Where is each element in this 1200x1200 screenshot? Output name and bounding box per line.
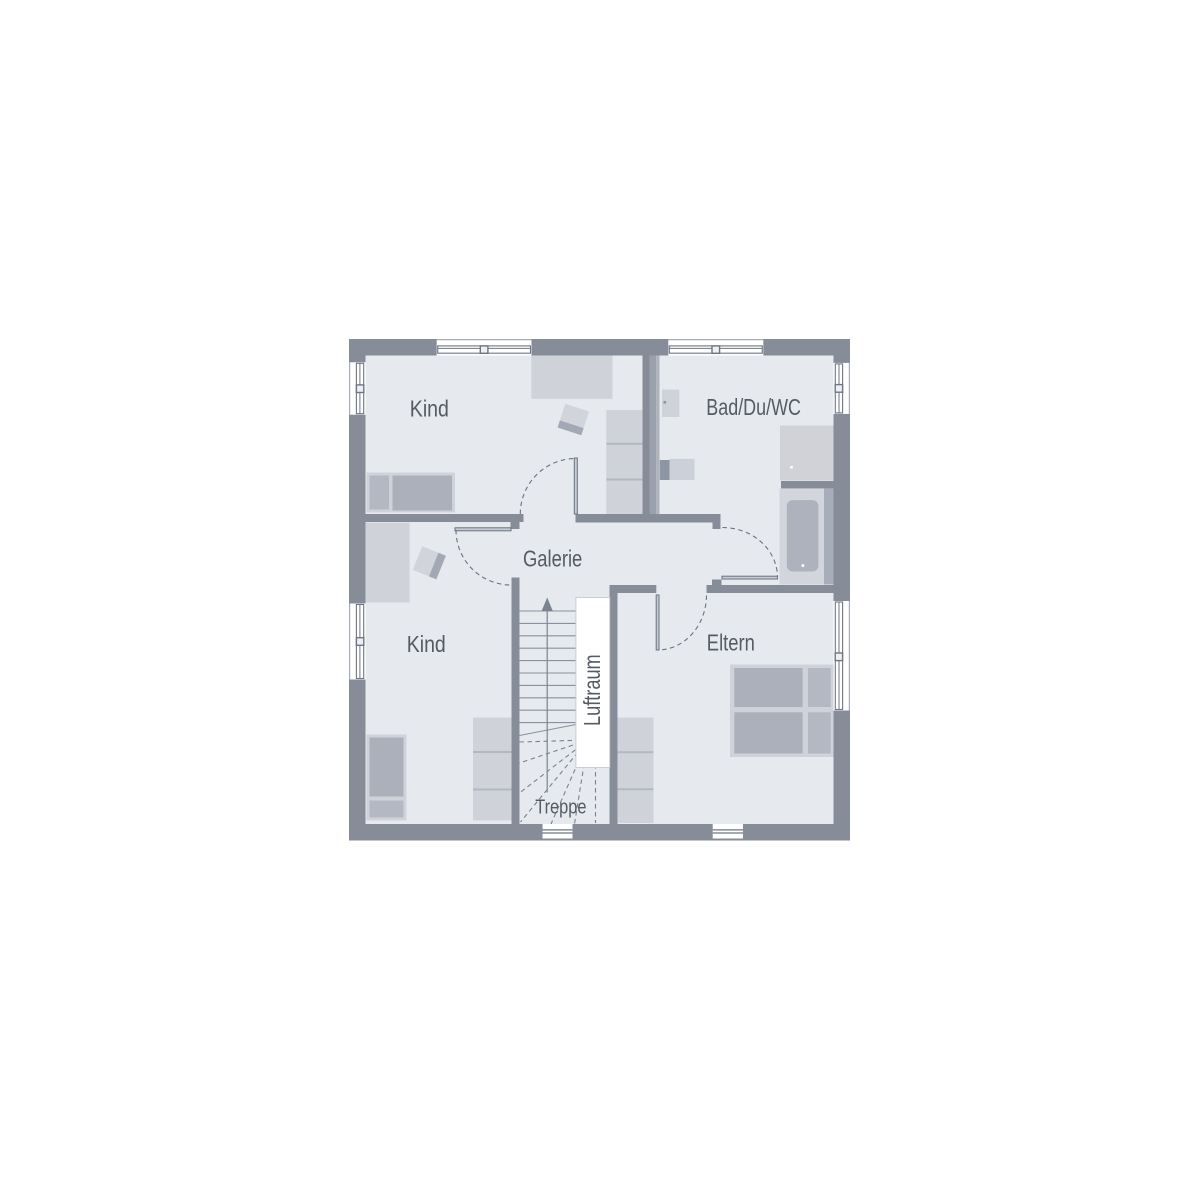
svg-text:Bad/Du/WC: Bad/Du/WC (706, 395, 801, 421)
svg-text:Kind: Kind (407, 632, 446, 658)
svg-text:Luftraum: Luftraum (580, 654, 606, 726)
svg-text:Eltern: Eltern (707, 631, 755, 656)
svg-text:Treppe: Treppe (535, 795, 586, 818)
svg-text:Galerie: Galerie (523, 547, 582, 572)
svg-text:Kind: Kind (410, 396, 449, 422)
